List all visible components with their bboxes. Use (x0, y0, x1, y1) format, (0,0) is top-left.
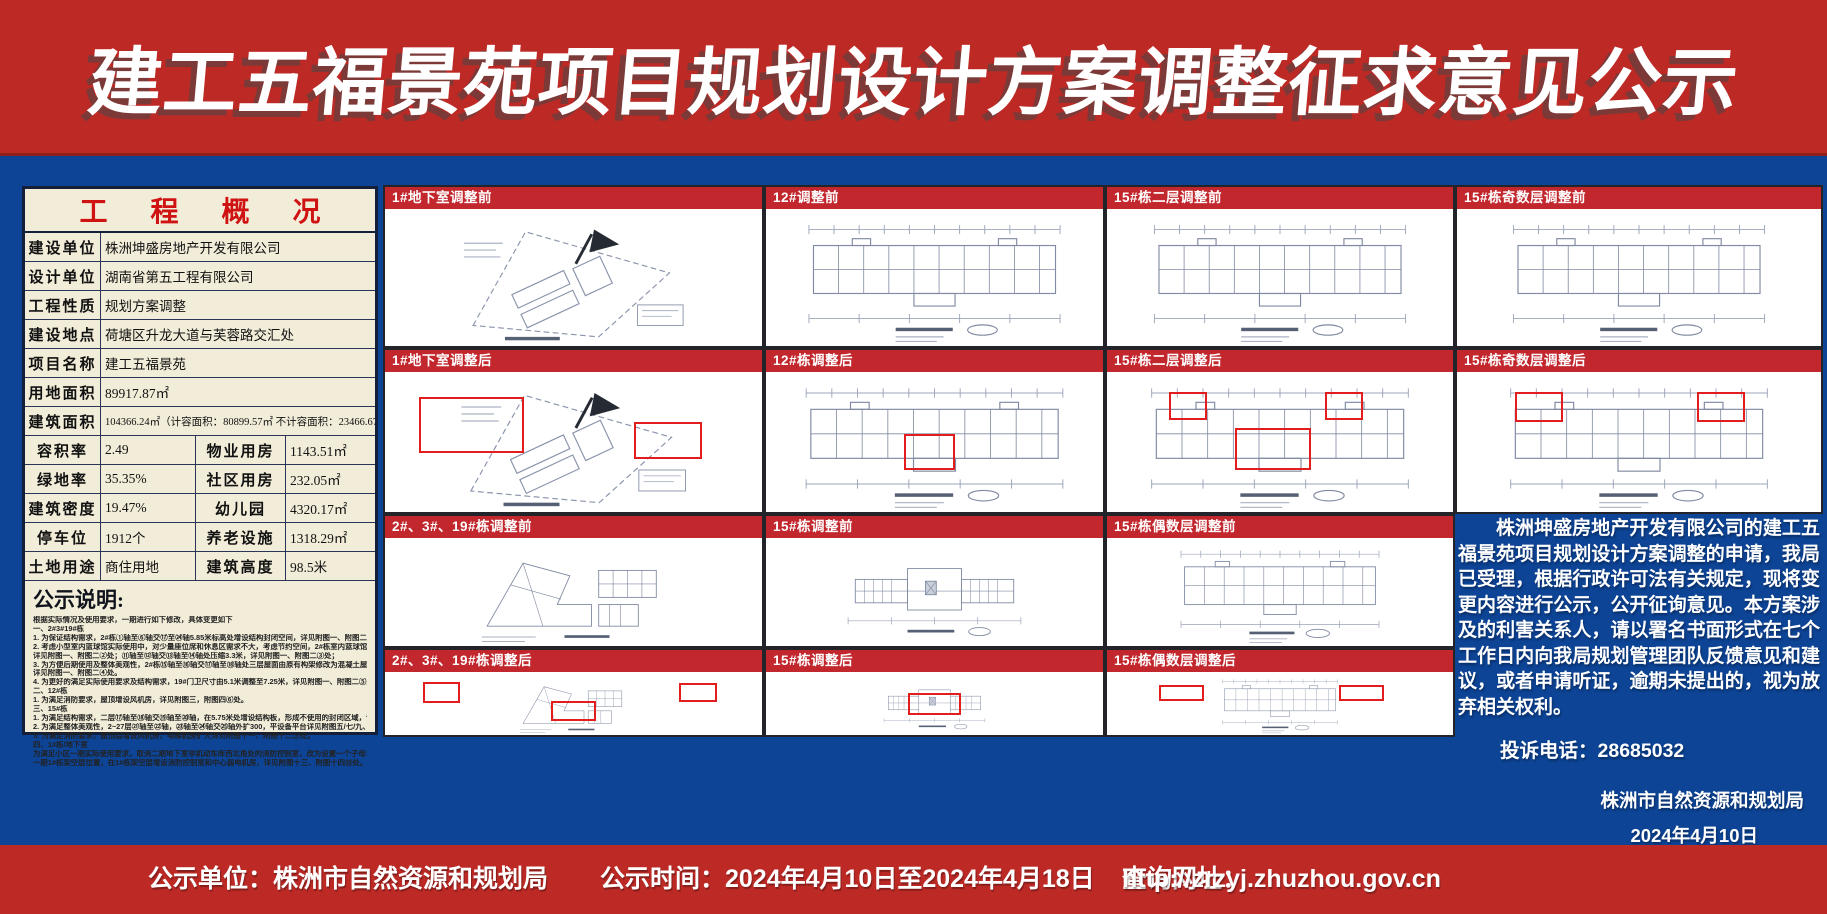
row-value: 1318.29㎡ (286, 527, 375, 547)
plan-cell-15-l2-before: 15#栋二层调整前 (1105, 185, 1455, 348)
row-value: 2.49 (101, 436, 196, 464)
table-row: 建设地点 荷塘区升龙大道与芙蓉路交汇处 (25, 320, 375, 349)
plan-cell-label: 15#栋偶数层调整后 (1107, 650, 1453, 672)
row-value: 荷塘区升龙大道与芙蓉路交汇处 (101, 324, 375, 344)
table-row: 土地用途 商住用地 建筑高度 98.5米 (25, 552, 375, 581)
plan-cell-basement-before: 1#地下室调整前 (383, 185, 764, 348)
plan-cell-label: 1#地下室调整前 (385, 187, 762, 209)
footer-bar: 公示单位：株洲市自然资源和规划局 公示时间：2024年4月10日至2024年4月… (0, 845, 1827, 914)
floorplan-image (766, 372, 1103, 512)
row-value: 89917.87㎡ (101, 382, 375, 402)
plan-cell-2-3-19-after: 2#、3#、19#栋调整后 (383, 648, 764, 737)
floorplan-image (385, 372, 762, 512)
row-label: 工程性质 (25, 291, 101, 319)
note-line: 根据实际情况及使用要求，一期进行如下修改，具体变更如下 (33, 616, 367, 625)
row-label: 建设单位 (25, 233, 101, 261)
table-row: 建筑密度 19.47% 幼儿园 4320.17㎡ (25, 494, 375, 523)
complaint-phone-line: 投诉电话：28685032 (1458, 734, 1820, 763)
footer-time: 公示时间：2024年4月10日至2024年4月18日 (600, 845, 1095, 914)
row-label: 养老设施 (196, 523, 286, 551)
floorplan-image (385, 672, 762, 735)
row-label: 绿地率 (25, 465, 101, 493)
change-highlight (1515, 392, 1562, 423)
row-label: 项目名称 (25, 349, 101, 377)
row-value: 19.47% (101, 494, 196, 522)
plan-cell-label: 12#调整前 (766, 187, 1103, 209)
note-line: 1. 为满足结构需求，二层⑰轴至⑱轴交⑲轴至⑳轴，在5.75米处增设结构板，形成… (33, 714, 367, 723)
plan-cell-label: 15#栋调整前 (766, 516, 1103, 538)
row-value: 建工五福景苑 (101, 353, 375, 373)
floorplan-image (385, 209, 762, 346)
plan-cell-15-l2-after: 15#栋二层调整后 (1105, 348, 1455, 514)
change-highlight (419, 397, 525, 453)
plan-cell-15-odd-before: 15#栋奇数层调整前 (1455, 185, 1823, 348)
floorplan-image (1107, 538, 1453, 646)
note-line: 详见附图一、附图二④处。 (33, 669, 367, 678)
plan-cell-label: 15#栋二层调整前 (1107, 187, 1453, 209)
plan-cell-2-3-19-before: 2#、3#、19#栋调整前 (383, 514, 764, 648)
note-line: 一期1#栋架空层位置，在1#栋架空层增设消防控制室和中心弱电机房，详见附图十三、… (33, 759, 367, 768)
footer-url: http://zrzyj.zhuzhou.gov.cn (1122, 845, 1441, 914)
floor-plan-drawing (1457, 209, 1821, 346)
plan-cell-label: 2#、3#、19#栋调整后 (385, 650, 762, 672)
note-line: 2. 考虑小型室内篮球馆实际使用中，对少量座位席和休息区需求不大，考虑节约空间，… (33, 643, 367, 652)
note-line: 一、2#3#19#栋 (33, 625, 367, 634)
site-plan-drawing (385, 209, 762, 346)
plan-cell-label: 15#栋二层调整后 (1107, 350, 1453, 372)
note-line: 4. 为更好的满足实际使用要求及结构需求，19#门卫尺寸由5.1米调整至7.25… (33, 678, 367, 687)
note-line: 三、15#栋 (33, 705, 367, 714)
row-value: 规划方案调整 (101, 295, 375, 315)
floor-plan-drawing (766, 209, 1103, 346)
floor-plan-drawing (1107, 209, 1453, 346)
table-row: 建设单位 株洲坤盛房地产开发有限公司 (25, 233, 375, 262)
notice-paragraph: 株洲坤盛房地产开发有限公司的建工五福景苑项目规划设计方案调整的申请，我局已受理，… (1458, 516, 1820, 720)
change-highlight (1235, 428, 1311, 470)
table-row: 绿地率 35.35% 社区用房 232.05㎡ (25, 465, 375, 494)
floorplan-image (1457, 372, 1821, 512)
plan-cell-label: 15#栋偶数层调整前 (1107, 516, 1453, 538)
row-label: 幼儿园 (196, 494, 286, 522)
change-highlight (1339, 685, 1384, 701)
row-value: 湖南省第五工程有限公司 (101, 266, 375, 286)
plan-cell-15-before: 15#栋调整前 (764, 514, 1105, 648)
notice-explanation: 公示说明: 根据实际情况及使用要求，一期进行如下修改，具体变更如下 一、2#3#… (25, 581, 375, 767)
change-highlight (1169, 392, 1207, 420)
change-highlight (904, 434, 955, 470)
change-highlight (1325, 392, 1363, 420)
row-value: 1912个 (101, 523, 196, 551)
floorplan-image (766, 672, 1103, 735)
plan-cell-12-after: 12#栋调整后 (764, 348, 1105, 514)
table-row: 容积率 2.49 物业用房 1143.51㎡ (25, 436, 375, 465)
plan-cell-label: 15#栋调整后 (766, 650, 1103, 672)
floorplan-image (766, 538, 1103, 646)
note-line: 为满足小区一期实际使用要求，取消二期地下室非机动车库西北角处的消防控制室，改为设… (33, 750, 367, 759)
footer-unit: 公示单位：株洲市自然资源和规划局 (148, 845, 548, 914)
public-notice-poster: 建工五福景苑项目规划设计方案调整征求意见公示 工 程 概 况 建设单位 株洲坤盛… (0, 0, 1827, 914)
note-line: 四、1#栋/地下室 (33, 741, 367, 750)
plan-cell-15-after: 15#栋调整后 (764, 648, 1105, 737)
row-value: 4320.17㎡ (286, 498, 375, 518)
plan-cell-label: 15#栋奇数层调整前 (1457, 187, 1821, 209)
note-line: 二、12#栋 (33, 687, 367, 696)
row-label: 土地用途 (25, 552, 101, 580)
complaint-phone-label: 投诉电话： (1500, 740, 1598, 762)
row-value: 1143.51㎡ (286, 440, 375, 460)
change-highlight (679, 683, 717, 702)
row-label: 用地面积 (25, 378, 101, 406)
change-highlight (908, 693, 962, 714)
row-label: 停车位 (25, 523, 101, 551)
floorplan-image (1457, 209, 1821, 346)
overview-title: 工 程 概 况 (25, 189, 375, 233)
change-highlight (1159, 685, 1204, 701)
row-value: 35.35% (101, 465, 196, 493)
notes-title: 公示说明: (33, 584, 367, 614)
agency-name: 株洲市自然资源和规划局 (1458, 787, 1820, 813)
floor-plan-drawing (1107, 538, 1453, 646)
floor-plan-drawing (1457, 372, 1821, 512)
complaint-phone-number: 28685032 (1598, 740, 1685, 762)
row-value: 232.05㎡ (286, 469, 375, 489)
table-row: 项目名称 建工五福景苑 (25, 349, 375, 378)
row-label: 建筑密度 (25, 494, 101, 522)
row-value: 商住用地 (101, 552, 196, 580)
project-overview-panel: 工 程 概 况 建设单位 株洲坤盛房地产开发有限公司 设计单位 湖南省第五工程有… (22, 186, 378, 735)
plan-cell-label: 12#栋调整后 (766, 350, 1103, 372)
table-row: 停车位 1912个 养老设施 1318.29㎡ (25, 523, 375, 552)
floorplan-image (1107, 672, 1453, 735)
row-value: 104366.24㎡（计容面积：80899.57㎡ 不计容面积：23466.67… (101, 414, 375, 429)
change-highlight (423, 682, 461, 703)
row-label: 建筑面积 (25, 407, 101, 435)
floorplan-image (1107, 372, 1453, 512)
plan-cell-15-even-after: 15#栋偶数层调整后 (1105, 648, 1455, 737)
poster-title: 建工五福景苑项目规划设计方案调整征求意见公示 (84, 23, 1743, 130)
floorplan-image (766, 209, 1103, 346)
table-row: 工程性质 规划方案调整 (25, 291, 375, 320)
plan-cell-label: 1#地下室调整后 (385, 350, 762, 372)
row-label: 建设地点 (25, 320, 101, 348)
plan-cell-label: 15#栋奇数层调整后 (1457, 350, 1821, 372)
note-line: 1. 为满足消防要求，屋顶增设风机房，详见附图三，附图四⑥处。 (33, 696, 367, 705)
north-arrow-icon (464, 230, 683, 341)
table-row: 用地面积 89917.87㎡ (25, 378, 375, 407)
row-value: 98.5米 (286, 556, 375, 576)
plan-cell-basement-after: 1#地下室调整后 (383, 348, 764, 514)
plan-cell-15-odd-after: 15#栋奇数层调整后 (1455, 348, 1823, 514)
row-value: 株洲坤盛房地产开发有限公司 (101, 237, 375, 257)
floorplan-image (385, 538, 762, 646)
table-row: 设计单位 湖南省第五工程有限公司 (25, 262, 375, 291)
note-line: 3. 为满足消防要求，屋顶层增设风机房，电梯机房扩大详见附图十一、附图十二⑨处。 (33, 732, 367, 741)
change-highlight (1697, 392, 1744, 423)
change-highlight (551, 701, 596, 721)
row-label: 建筑高度 (196, 552, 286, 580)
floorplan-image (1107, 209, 1453, 346)
note-line: 1. 为保证结构需求，2#栋①轴至⑥轴交⑰至㉔轴5.85米标高处增设结构封闭空间… (33, 634, 367, 643)
row-label: 设计单位 (25, 262, 101, 290)
header-banner: 建工五福景苑项目规划设计方案调整征求意见公示 (0, 0, 1827, 156)
plan-cell-15-even-before: 15#栋偶数层调整前 (1105, 514, 1455, 648)
floor-plan-drawing (766, 538, 1103, 646)
table-row: 建筑面积 104366.24㎡（计容面积：80899.57㎡ 不计容面积：234… (25, 407, 375, 436)
plan-cell-label: 2#、3#、19#栋调整前 (385, 516, 762, 538)
building-cluster-drawing (385, 538, 762, 646)
row-label: 物业用房 (196, 436, 286, 464)
row-label: 社区用房 (196, 465, 286, 493)
floor-plan-drawing (1107, 672, 1453, 735)
plan-cell-12-before: 12#调整前 (764, 185, 1105, 348)
notice-text-block: 株洲坤盛房地产开发有限公司的建工五福景苑项目规划设计方案调整的申请，我局已受理，… (1458, 516, 1820, 848)
note-line: 3. 为方便后期使用及整体美观性，2#栋⑮轴至⑯轴交⑰轴至⑱轴处三层屋面由原有构… (33, 661, 367, 670)
change-highlight (634, 422, 702, 458)
note-line: 详见附图一、附图二②处；⑪轴至⑫轴交⑬轴至⑭轴处压缩3.3米，详见附图一、附图二… (33, 652, 367, 661)
row-label: 容积率 (25, 436, 101, 464)
note-line: 2. 为满足整体美观性，2~27层㉑轴至㉒轴，㉓轴至㉔轴交㉕轴外扩300，平设备… (33, 723, 367, 732)
